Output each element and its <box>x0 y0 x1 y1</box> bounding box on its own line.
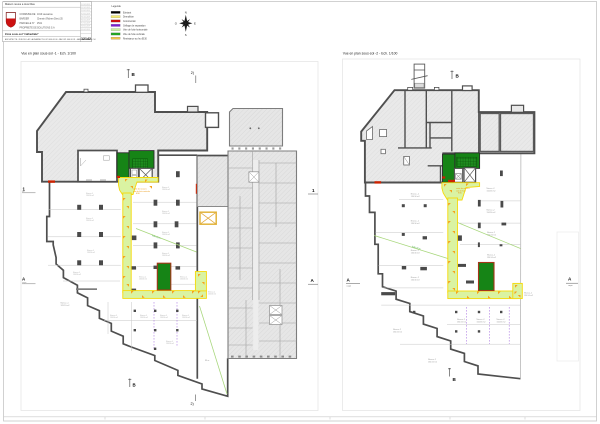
svg-text:134.56 m2: 134.56 m2 <box>457 321 466 323</box>
svg-text:134.56 m2: 134.56 m2 <box>162 189 170 191</box>
svg-text:N 7 02.2019: N 7 02.2019 <box>81 23 90 25</box>
svg-text:134.56 m2: 134.56 m2 <box>110 317 118 319</box>
svg-text:134.56 m2: 134.56 m2 <box>428 361 437 363</box>
svg-text:134.56 m2: 134.56 m2 <box>497 321 506 323</box>
svg-text:2541: 2541 <box>37 23 43 25</box>
svg-text:134.56 m2: 134.56 m2 <box>524 295 533 297</box>
svg-text:134.56 m2: 134.56 m2 <box>162 213 170 215</box>
svg-text:COMMUNE DE: COMMUNE DE <box>20 14 36 16</box>
svg-text:coupe: coupe <box>568 285 573 287</box>
svg-text:EI30: EI30 <box>136 193 140 195</box>
svg-text:SOLUTIONS S.A: SOLUTIONS S.A <box>37 26 55 29</box>
svg-text:134.56 m2: 134.56 m2 <box>139 279 147 281</box>
svg-text:134.56 m2: 134.56 m2 <box>487 190 496 192</box>
svg-text:134.56 m2: 134.56 m2 <box>411 196 420 198</box>
svg-text:Maison neuve a tous Dieu: Maison neuve a tous Dieu <box>5 2 36 6</box>
svg-text:134.56 m2: 134.56 m2 <box>411 280 420 282</box>
svg-text:PARCELLE N°: PARCELLE N° <box>20 22 35 25</box>
svg-text:S: S <box>185 33 187 37</box>
svg-text:134.56 m2: 134.56 m2 <box>86 220 94 222</box>
svg-text:Resistance au feu EI30: Resistance au feu EI30 <box>123 37 147 40</box>
svg-text:134.56 m2: 134.56 m2 <box>87 252 95 254</box>
svg-text:Vue en plan sous-sol -2 - Ech.: Vue en plan sous-sol -2 - Ech. 1/100 <box>343 51 398 55</box>
svg-text:134.56 m2: 134.56 m2 <box>180 279 188 281</box>
svg-text:E: E <box>194 21 196 25</box>
svg-text:134.56 m2: 134.56 m2 <box>208 294 216 296</box>
svg-text:1010 Lausanne: 1010 Lausanne <box>37 14 54 16</box>
svg-text:N 2 02.2019: N 2 02.2019 <box>81 7 90 9</box>
svg-text:Voie de fuite horizontale: Voie de fuite horizontale <box>123 29 148 32</box>
svg-text:134.56 m2: 134.56 m2 <box>86 195 94 197</box>
svg-text:EI30: EI30 <box>458 193 462 195</box>
svg-text:BARDER: BARDER <box>20 17 30 20</box>
svg-text:coupe: coupe <box>22 282 26 284</box>
svg-text:134.56 m2: 134.56 m2 <box>487 257 496 259</box>
svg-text:35 m: 35 m <box>205 360 210 362</box>
svg-text:134.56 m2: 134.56 m2 <box>182 317 190 319</box>
svg-text:ech: ech <box>22 191 25 193</box>
svg-text:B: B <box>133 383 136 388</box>
svg-text:ARCHITECTE - RUE DU LAC LAUS: ARCHITECTE - RUE DU LAC LAUSANNE TEL 021… <box>5 38 96 41</box>
svg-text:134.56 m2: 134.56 m2 <box>411 223 420 225</box>
svg-text:128.20 m2: 128.20 m2 <box>61 305 70 307</box>
svg-text:134.56 m2: 134.56 m2 <box>393 331 402 333</box>
svg-text:2): 2) <box>191 71 194 75</box>
svg-text:134.56 m2: 134.56 m2 <box>411 252 420 254</box>
svg-text:134.56 m2: 134.56 m2 <box>487 212 496 214</box>
svg-text:134.56 m2: 134.56 m2 <box>140 317 148 319</box>
svg-text:134.56 m2: 134.56 m2 <box>166 343 174 345</box>
svg-text:N 5 02.2019: N 5 02.2019 <box>81 16 90 18</box>
svg-text:Grillage de separation: Grillage de separation <box>123 24 146 27</box>
svg-text:N: N <box>185 10 187 14</box>
svg-text:Chemin (Riches-Dies) 35: Chemin (Riches-Dies) 35 <box>37 18 63 20</box>
svg-text:N 3 02.2019: N 3 02.2019 <box>81 10 90 12</box>
svg-text:134.56 m2: 134.56 m2 <box>160 317 168 319</box>
svg-text:134.56 m2: 134.56 m2 <box>162 234 170 236</box>
svg-text:134.56 m2: 134.56 m2 <box>162 255 170 257</box>
svg-text:N 8 02.2019: N 8 02.2019 <box>81 26 90 28</box>
svg-text:Existant: Existant <box>123 11 132 14</box>
svg-text:Voie de fuite verticale: Voie de fuite verticale <box>123 33 146 36</box>
svg-text:Construction: Construction <box>123 20 137 23</box>
svg-text:N 6 02.2019: N 6 02.2019 <box>81 20 90 22</box>
svg-text:Legende: Legende <box>112 5 122 8</box>
svg-text:Zone sous-sol "cathedrale": Zone sous-sol "cathedrale" <box>5 32 40 36</box>
svg-text:Demolition: Demolition <box>123 16 135 19</box>
svg-text:N 4 02.2019: N 4 02.2019 <box>81 13 90 15</box>
svg-text:134.56 m2: 134.56 m2 <box>477 321 486 323</box>
svg-text:Vue en plan sous-sol -1 - Ech.: Vue en plan sous-sol -1 - Ech. 1/100 <box>21 52 76 56</box>
svg-text:N 9 02.2019: N 9 02.2019 <box>81 29 90 31</box>
svg-text:1: 1 <box>312 188 315 193</box>
svg-text:2): 2) <box>191 402 194 406</box>
svg-text:coupe: coupe <box>347 285 352 287</box>
svg-text:N 1 02.2019: N 1 02.2019 <box>81 4 90 6</box>
svg-text:PROPRIETE DE: PROPRIETE DE <box>20 27 38 29</box>
svg-text:134.56 m2: 134.56 m2 <box>73 274 81 276</box>
